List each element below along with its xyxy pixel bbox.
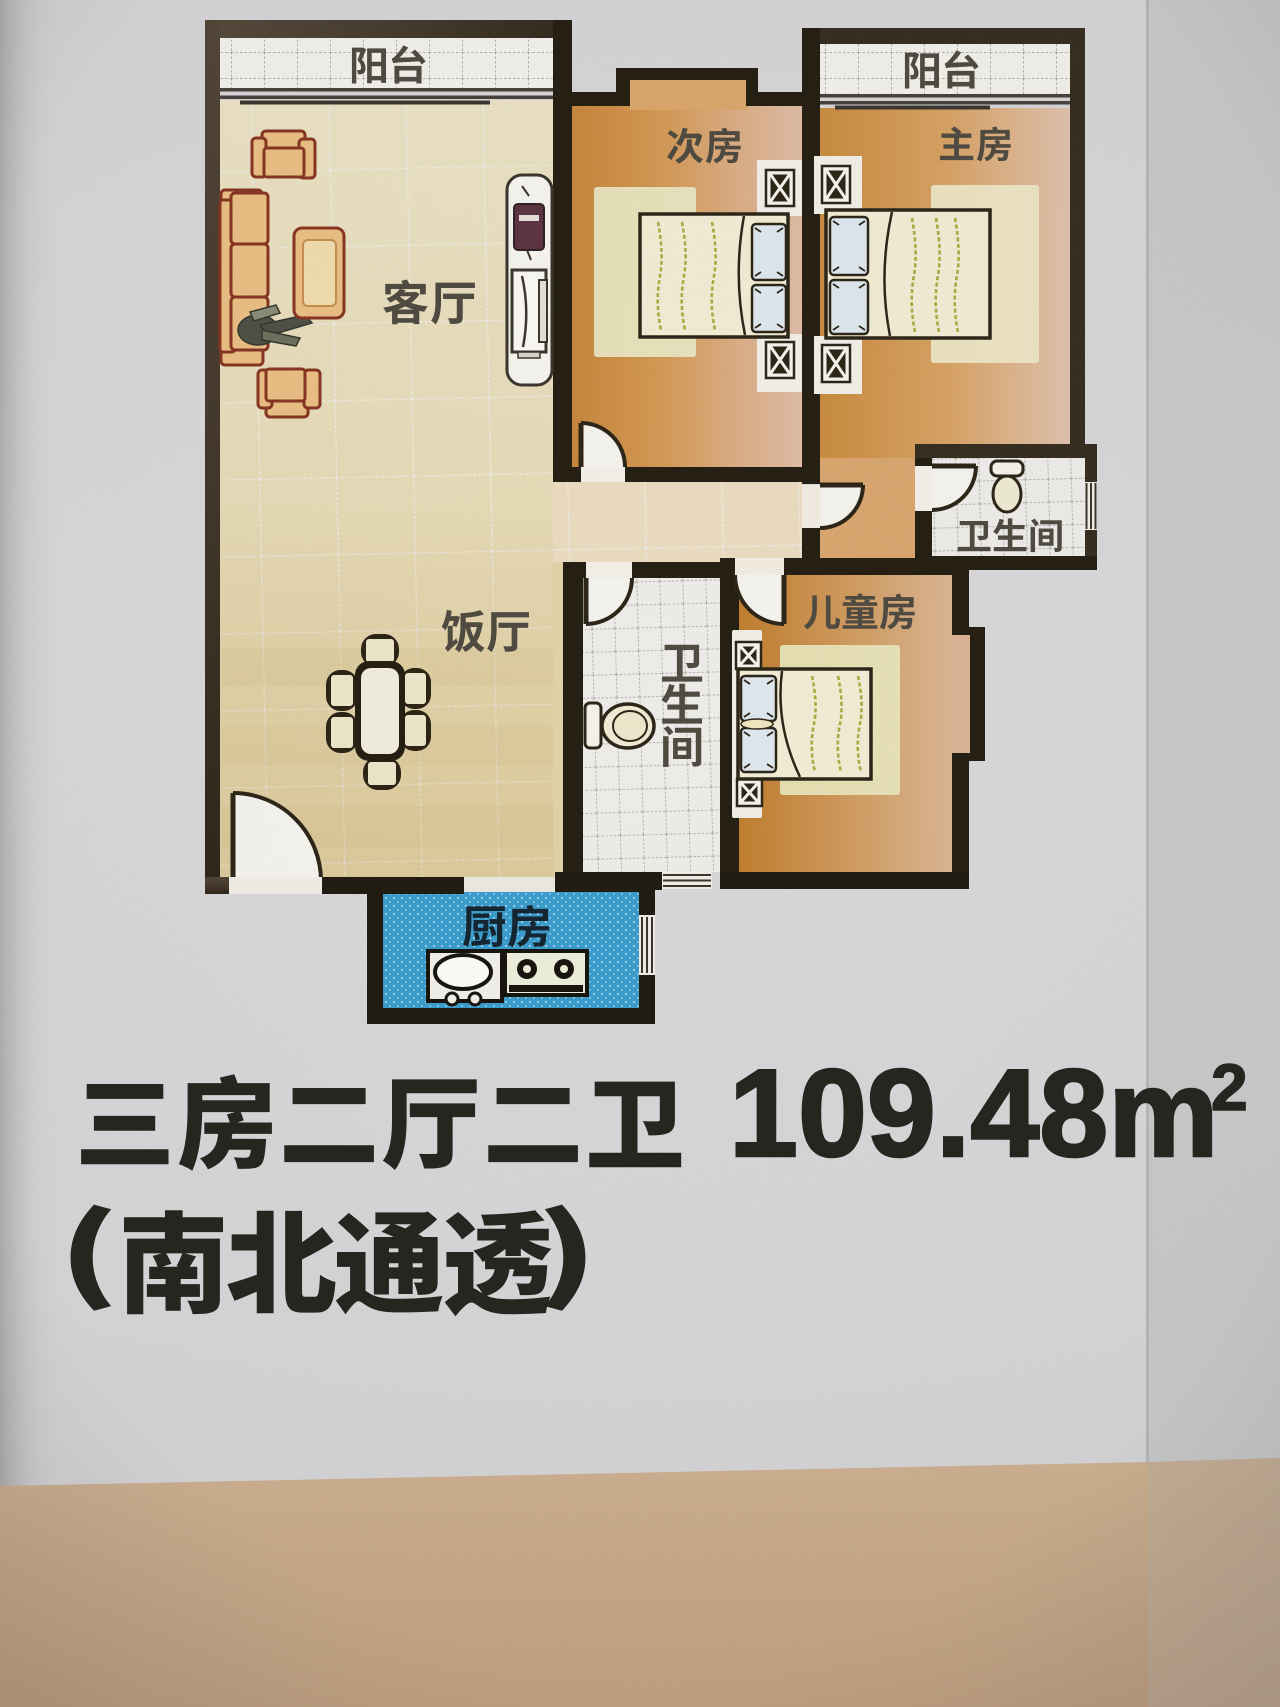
svg-text:2: 2 bbox=[1211, 1050, 1248, 1124]
svg-text:109.48m: 109.48m bbox=[729, 1045, 1219, 1183]
